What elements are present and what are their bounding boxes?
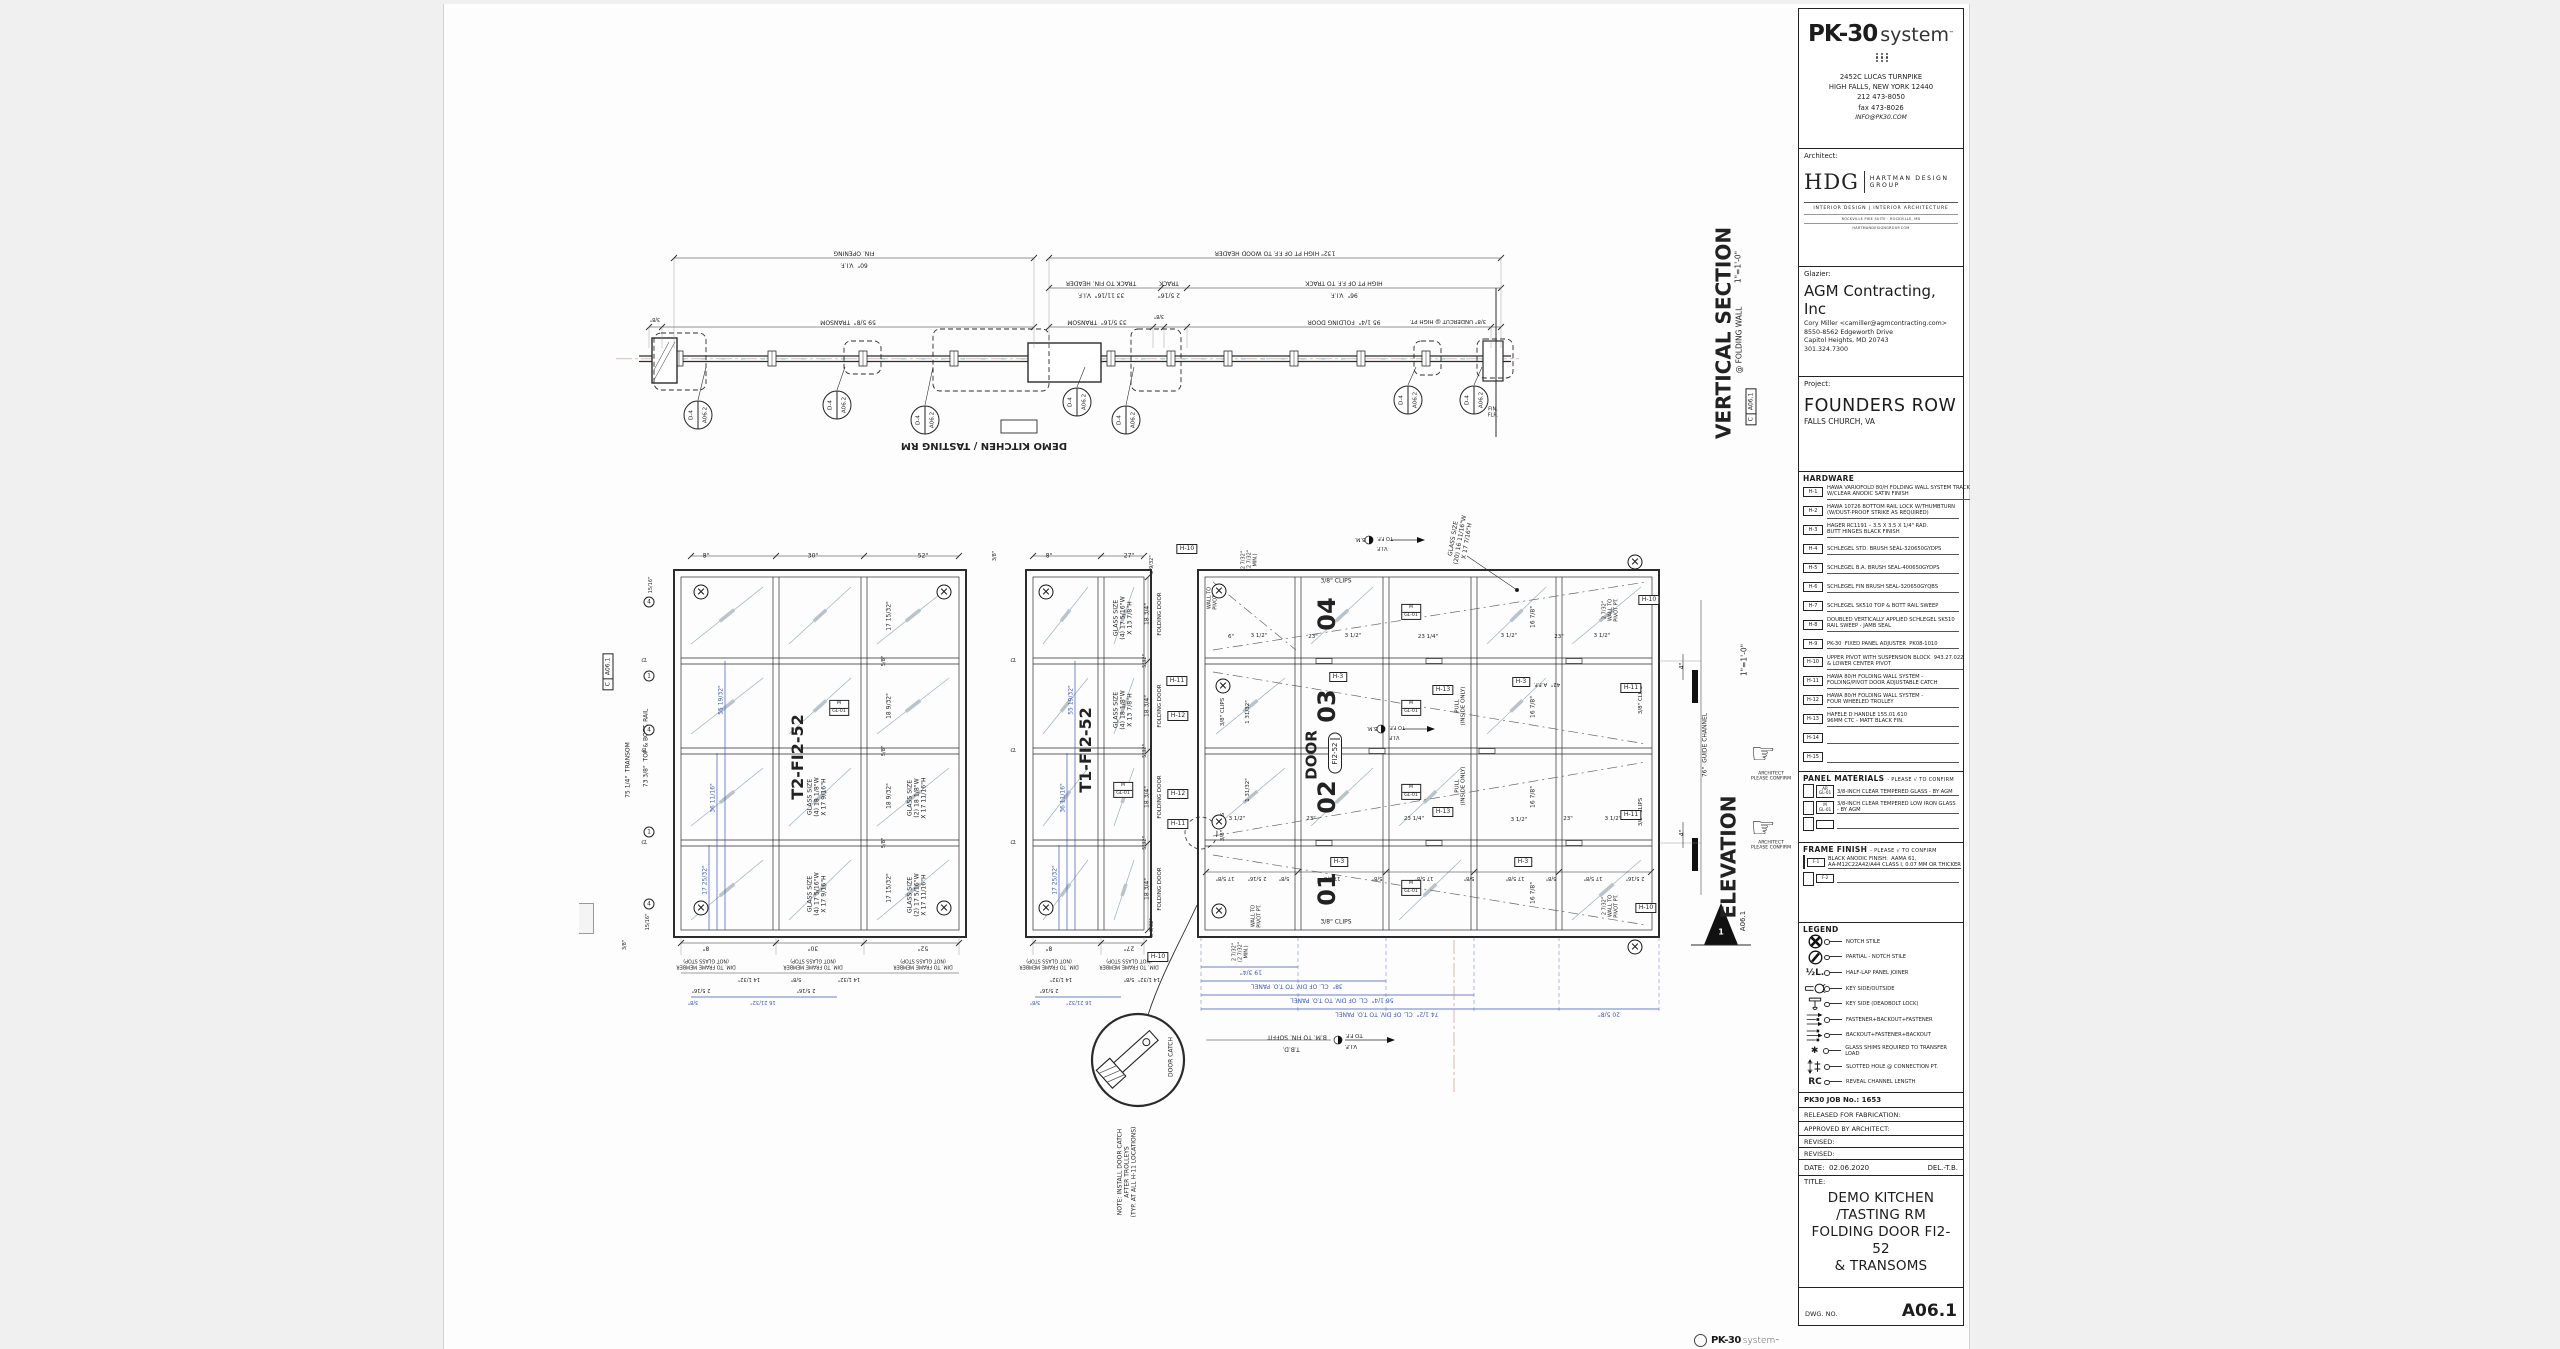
drawing-annotation: 18 3/4" [1145, 878, 1152, 900]
glazier-contact: Cory Miller <camiller@agmcontracting.com… [1804, 320, 1958, 354]
drawing-annotation: 8" [703, 944, 710, 951]
approval-row: REVISED: [1799, 1136, 1963, 1148]
drawing-annotation: TO F.F. [1377, 534, 1393, 540]
reference-tag: CA06.1 [603, 654, 614, 691]
drawing-annotation: 3 1/2" [1345, 633, 1362, 639]
confirm-checkbox[interactable] [1803, 801, 1814, 815]
drawing-annotation: 14 1/32" [738, 975, 760, 981]
drawing-annotation: ☞ [1750, 738, 1775, 770]
drawing-annotation: 5/8" [1124, 975, 1135, 981]
drawing-annotation: 2 7/32" (2 7/32" MIN.) [1241, 550, 1258, 570]
reference-tag: FI2-52 [1328, 733, 1342, 774]
drawing-annotation: 17 5/8" [1584, 874, 1603, 880]
hardware-tag: H-4 [1803, 544, 1823, 554]
delineator: DEL.-T.B. [1927, 1164, 1958, 1172]
legend-item: RCREVEAL CHANNEL LENGTH [1803, 1074, 1959, 1090]
drawing-annotation: 17 15/32" [887, 873, 894, 903]
glazier-block: Glazier: AGM Contracting, Inc Cory Mille… [1799, 267, 1963, 377]
drawing-annotation: 2 5/16" [1248, 874, 1267, 880]
hardware-desc: SCHLEGEL FIN BRUSH SEAL-320650GYQBS [1827, 581, 1959, 593]
notch-stile-mark: ✕ [694, 901, 709, 916]
sheet-title-line: DEMO KITCHEN [1804, 1190, 1958, 1207]
drawing-annotation: 3/8" UNDERCUT @ HIGH PT. [1410, 318, 1486, 324]
hardware-callout: H-10 [1638, 595, 1659, 605]
material-desc: 3/8-INCH CLEAR TEMPERED GLASS - BY AGM [1837, 787, 1959, 796]
hardware-callout: H-12 [1167, 789, 1188, 799]
hardware-callout: H-3 [1330, 857, 1348, 867]
company-address: 2452C LUCAS TURNPIKEHIGH FALLS, NEW YORK… [1804, 72, 1958, 122]
hardware-desc: PK-30 FIXED PANEL ADJUSTER PK08-1010 [1827, 638, 1959, 650]
drawing-annotation: HIGH PT OF F.F. TO TRACK [1305, 279, 1382, 286]
material-tag: AR GL-01 [1816, 785, 1834, 798]
drawing-annotation: 5/8" [1464, 874, 1475, 880]
legend-leader [1828, 1003, 1842, 1005]
legend-leader [1828, 1034, 1842, 1036]
job-number: PK30 JOB No.: 1653 [1799, 1093, 1963, 1108]
frame-finish-list: F-1BLACK ANODIC FINISH: AAMA 61, AA-M12C… [1803, 854, 1959, 887]
architect-logo: HDG HARTMAN DESIGN GROUP [1804, 170, 1958, 194]
hardware-row: H-1HAWA VARIOFOLD 80/H FOLDING WALL SYST… [1803, 483, 1959, 502]
drawing-annotation: 3 1/2" [1605, 816, 1622, 822]
drawing-annotation: @ FOLDING WALL [1736, 307, 1745, 374]
drawing-annotation: 3 1/2" [1229, 816, 1246, 822]
hardware-desc: SCHLEGEL B.A. BRUSH SEAL-400650GYDPS [1827, 562, 1959, 574]
drawing-annotation: 42" A.F.F. [1534, 681, 1561, 687]
centerline-mark: CL [1011, 658, 1016, 664]
reference-tag: CA06.1 [1746, 389, 1757, 426]
legend-label: PARTIAL - NOTCH STILE [1846, 954, 1906, 960]
panel-materials-title: PANEL MATERIALS - PLEASE √ TO CONFIRM [1803, 774, 1959, 783]
hardware-callout: H-11 [1620, 810, 1641, 820]
drawing-annotation: T1-FI2-52 [1077, 707, 1095, 793]
detail-callout-bubble: D-4A06.2 [823, 391, 852, 420]
drawing-annotation: 3 1/2" [1501, 633, 1518, 639]
notch-stile-mark: ✕ [1212, 815, 1227, 830]
drawing-annotation: B.M. [1355, 535, 1366, 541]
hardware-callout: H-13 [1432, 807, 1453, 817]
drawing-annotation: 16 21/32" [750, 998, 776, 1004]
drawing-annotation: ± 9/32" [1150, 918, 1156, 937]
drawing-annotation: 52" [918, 554, 928, 561]
drawing-annotation: 4" [1680, 663, 1687, 670]
drawing-annotation: 8" [1046, 944, 1053, 951]
detail-callout-bubble: D-4A06.2 [911, 406, 940, 435]
drawing-annotation: 1"=1'-0" [1741, 644, 1750, 676]
titleblock-logo: PK-30system™ 2452C LUCAS TURNPIKEHIGH FA… [1799, 9, 1963, 149]
hardware-tag: H-8 [1803, 620, 1823, 630]
drawing-annotation: 95 1/4" FOLDING DOOR [1308, 318, 1381, 325]
drawing-annotation: 36 11/16" [711, 783, 718, 813]
reference-tag: MGL-01 [1401, 604, 1421, 620]
detail-callout-bubble: D-4A06.2 [1460, 386, 1489, 415]
drawing-annotation: 33 11/16" V.I.F. [1078, 291, 1125, 298]
drawing-annotation: 8" [703, 554, 710, 561]
grid-marker: 1 [644, 827, 655, 838]
drawing-annotation: 16 7/8" [1531, 882, 1538, 904]
reference-tag: MGL-01 [1401, 700, 1421, 716]
drawing-annotation: 2 7/32" WALL TO PIVOT PT. [1602, 894, 1619, 917]
drawing-annotation: 02 [1314, 780, 1342, 813]
hardware-row: H-14 [1803, 729, 1959, 748]
drawing-annotation: 23" [1306, 816, 1316, 822]
hardware-row: H-15 [1803, 747, 1959, 766]
drawing-annotation: 5/8" [1546, 874, 1557, 880]
hardware-tag: H-13 [1803, 714, 1823, 724]
drawing-annotation: 74 1/2" CL. OF DIV. TO T.O. PANEL [1335, 1010, 1438, 1017]
drawing-annotation: 8" [1046, 554, 1053, 561]
legend-leader [1828, 1019, 1842, 1021]
hardware-tag: H-2 [1803, 506, 1823, 516]
drawing-annotation: V.I.F. [1376, 544, 1387, 550]
drawing-annotation: 5/8" [791, 975, 802, 981]
centerline-mark: CL [642, 840, 647, 846]
panel-materials-list: AR GL-013/8-INCH CLEAR TEMPERED GLASS - … [1803, 783, 1959, 833]
hardware-row: H-2HAWA 10726 BOTTOM RAIL LOCK W/THUMBTU… [1803, 502, 1959, 521]
legend-label: GLASS SHIMS REQUIRED TO TRANSFER LOAD [1845, 1045, 1959, 1057]
drawing-annotation: 30" [808, 944, 818, 951]
legend-label: HALF-LAP PANEL JOINER [1846, 970, 1908, 976]
drawing-annotation: 5/8" [882, 838, 888, 848]
architect-address: ROCKVILLE PIKE SUITE · ROCKVILLE, MD [1804, 217, 1958, 224]
drawing-annotation: 17 25/32" [1053, 865, 1060, 895]
hardware-callout: H-10 [1176, 544, 1197, 554]
drawing-annotation: 3/8" [993, 551, 999, 561]
drawing-annotation: DIM. TO FRAME MEMBER (NOT GLASS STOP) [893, 957, 952, 968]
hardware-callout: H-3 [1514, 857, 1532, 867]
drawing-annotation: 15/16" [649, 577, 655, 594]
detail-callout-bubble: D-4A06.2 [1112, 406, 1141, 435]
drawing-annotation: 2 5/16" [1158, 291, 1180, 298]
legend-item: KEY SIDE/OUTSIDE [1803, 981, 1959, 997]
hardware-tag: H-3 [1803, 525, 1823, 535]
address-line: HIGH FALLS, NEW YORK 12440 [1804, 82, 1958, 92]
drawing-annotation: 3/8" [688, 998, 699, 1004]
hardware-row: H-11HAWA 80/H FOLDING WALL SYSTEM - FOLD… [1803, 672, 1959, 691]
legend-label: FASTENER+BACKOUT+FASTENER [1846, 1017, 1933, 1023]
hardware-block: HARDWARE H-1HAWA VARIOFOLD 80/H FOLDING … [1799, 472, 1963, 772]
drawing-annotation: 03 [1314, 689, 1342, 722]
architect-firm: HARTMAN DESIGN GROUP [1870, 175, 1958, 189]
hardware-callout: H-11 [1167, 819, 1188, 829]
drawing-annotation: ARCHITECT PLEASE CONFIRM [1751, 841, 1791, 852]
panel-material-row: AR GL-013/8-INCH CLEAR TEMPERED GLASS - … [1803, 783, 1959, 800]
sheet-title: DEMO KITCHEN/TASTING RMFOLDING DOOR FI2-… [1804, 1190, 1958, 1274]
finish-desc [1837, 874, 1959, 883]
material-desc: 3/8-INCH CLEAR TEMPERED LOW IRON GLASS -… [1837, 801, 1959, 814]
reference-tag: MGL-01 [1113, 782, 1133, 798]
date-value: 02.06.2020 [1829, 1164, 1869, 1172]
footer-brand-light: system [1743, 1336, 1776, 1346]
drawing-annotation: TO F.F. [1389, 723, 1405, 729]
legend-label: REVEAL CHANNEL LENGTH [1846, 1079, 1915, 1085]
drawing-annotation: 18 3/4" [1145, 786, 1152, 808]
legend-item: FASTENER+BACKOUT+FASTENER [1803, 1012, 1959, 1028]
drawing-annotation: V.I.F. [1388, 733, 1399, 739]
drawing-annotation: 5/8" [882, 746, 888, 756]
drawing-annotation: DOOR [1303, 730, 1320, 780]
confirm-checkbox[interactable] [1803, 872, 1814, 886]
drawing-annotation: GLASS SIZE (2) 18 1/8"W X 17 11/16"H [906, 777, 927, 818]
drawing-annotation: FOLDING DOOR [1157, 775, 1163, 818]
drawing-annotation: 55 19/32" [1069, 685, 1076, 715]
drawing-annotation: 18 3/4" [1145, 695, 1152, 717]
sheet-edge-tab [579, 903, 594, 934]
title-block: PK-30system™ 2452C LUCAS TURNPIKEHIGH FA… [1798, 8, 1964, 1326]
reference-tag: MGL-01 [1401, 880, 1421, 896]
detail-callout-bubble: D-4A06.2 [684, 401, 713, 430]
drawing-annotation: 3/8" [1154, 312, 1164, 318]
grid-marker: 4 [644, 899, 655, 910]
drawing-annotation: TRACK [1159, 279, 1179, 286]
drawing-annotation: 3/8" [650, 315, 660, 321]
hardware-callout: H-3 [1329, 672, 1347, 682]
finish-tag: F-1 [1807, 858, 1825, 867]
legend-label: KEY SIDE/OUTSIDE [1846, 986, 1894, 992]
drawing-annotation: 20 5/8" [1598, 1010, 1620, 1017]
drawing-annotation: 60" V.I.F. [840, 261, 868, 268]
drawing-annotation: 2 7/32" (2 7/32" MIN.) [1232, 942, 1249, 962]
drawing-annotation: 2 5/16" [692, 986, 711, 992]
drawing-annotation: 23" [1554, 634, 1564, 640]
architect-website: HARTMANDESIGNGROUP.COM [1804, 226, 1958, 232]
drawing-annotation: 23 1/4" [1404, 816, 1424, 822]
drawing-annotation: 2 7/32" WALL TO PIVOT PT. [1602, 598, 1619, 621]
drawing-annotation: WALL TO PIVOT PT. [1251, 904, 1263, 927]
legend-item: NOTCH STILE [1803, 934, 1959, 950]
approval-row: REVISED: [1799, 1148, 1963, 1160]
title-label: TITLE: [1804, 1178, 1958, 1186]
architect-block: Architect: HDG HARTMAN DESIGN GROUP INTE… [1799, 149, 1963, 267]
reference-tag: MGL-01 [829, 700, 849, 716]
confirm-checkbox[interactable] [1803, 784, 1814, 798]
legend-label: SLOTTED HOLE @ CONNECTION PT. [1846, 1064, 1938, 1070]
legend-item: SLOTTED HOLE @ CONNECTION PT. [1803, 1059, 1959, 1075]
drawing-annotation: FIN. FLR. [1488, 407, 1499, 419]
drawing-annotation: FOLDING DOOR [1157, 592, 1163, 635]
hardware-callout: H-10 [1635, 903, 1656, 913]
legend-leader [1828, 1066, 1842, 1068]
drawing-annotation: 3 1/2" [1511, 817, 1528, 823]
notch-stile-mark: ✕ [1216, 679, 1231, 694]
confirm-checkbox[interactable] [1803, 855, 1805, 869]
drawing-annotation: 17 25/32" [703, 865, 710, 895]
drawing-annotation: 1"=1'-0" [1735, 251, 1744, 283]
legend-leader [1828, 941, 1842, 943]
hardware-desc: HAFELE D HANDLE 155.01.610 96MM CTC - MA… [1827, 712, 1959, 727]
drawing-annotation: 6" [1228, 634, 1234, 640]
hardware-tag: H-14 [1803, 733, 1823, 743]
hardware-row: H-9PK-30 FIXED PANEL ADJUSTER PK08-1010 [1803, 634, 1959, 653]
grid-marker: 4 [644, 725, 655, 736]
hardware-title: HARDWARE [1803, 474, 1959, 483]
hardware-desc: SCHLEGEL STD. BRUSH SEAL-320650GYDPS [1827, 543, 1959, 555]
drawing-annotation: T.B.D. [1282, 1045, 1299, 1052]
drawing-annotation: 16 7/8" [1531, 606, 1538, 628]
drawing-annotation: VERTICAL SECTION [1713, 227, 1736, 439]
drawing-annotation: 2 5/16" [797, 986, 816, 992]
company-email: INFO@PK30.COM [1804, 113, 1958, 122]
drawing-annotation: 18 9/32" [887, 693, 894, 719]
hardware-desc: HAGER RC1191 – 3.5 X 3.5 X 1/4" RAD. BUT… [1827, 523, 1959, 538]
legend-label: KEY SIDE (DEADBOLT LOCK) [1846, 1001, 1918, 1007]
drawing-annotation: B.M. [1367, 724, 1378, 730]
frame-finish-title: FRAME FINISH - PLEASE √ TO CONFIRM [1803, 845, 1959, 854]
drawing-annotation: 27" [1124, 554, 1134, 561]
drawing-annotation: 55 19/32" [719, 685, 726, 715]
drawing-annotation: 5/32" [1143, 654, 1149, 668]
hardware-desc: DOUBLED VERTICALLY APPLIED SCHLEGEL SK51… [1827, 617, 1959, 632]
drawing-annotation: DIM. TO FRAME MEMBER (NOT GLASS STOP) [1019, 957, 1078, 968]
hardware-callout: H-10 [1147, 952, 1168, 962]
hardware-callout: H-13 [1432, 685, 1453, 695]
hardware-desc: HAWA 10726 BOTTOM RAIL LOCK W/THUMBTURN … [1827, 504, 1959, 519]
drawing-annotation: DIM. TO FRAME MEMBER (NOT GLASS STOP) [676, 957, 735, 968]
drawing-annotation: 59 5/8" TRANSOM [820, 318, 876, 325]
drawing-sheet: FIN. OPENING60" V.I.F.132" HIGH PT OF F.… [443, 4, 1970, 1349]
grid-marker: 1 [644, 671, 655, 682]
glazier-contact-line: 8550-8562 Edgeworth Drive [1804, 329, 1958, 338]
address-line: 2452C LUCAS TURNPIKE [1804, 72, 1958, 82]
grid-marker: 4 [644, 597, 655, 608]
drawing-annotation: 5/8" [882, 656, 888, 666]
drawing-annotation: GLASS SIZE (4) 18 1/8"W X 13 7/8"H [1112, 690, 1133, 730]
legend-leader [1828, 988, 1842, 990]
notch-stile-mark: ✕ [1212, 904, 1227, 919]
project-name: FOUNDERS ROW [1804, 396, 1958, 416]
drawing-annotation: 3/8" CLIPS [1320, 579, 1351, 586]
hardware-tag: H-6 [1803, 582, 1823, 592]
hardware-tag: H-10 [1803, 657, 1823, 667]
hardware-tag: H-15 [1803, 752, 1823, 762]
hardware-tag: H-12 [1803, 695, 1823, 705]
drawing-annotation: GLASS SIZE (2) 17 5/16"W X 17 11/16"H [906, 873, 927, 916]
sheet-title-line: FOLDING DOOR FI2-52 [1804, 1224, 1958, 1258]
legend-title: LEGEND [1803, 925, 1959, 934]
drawing-annotation: 4" [1680, 830, 1687, 837]
dwg-number-block: DWG. NO. A06.1 [1799, 1288, 1963, 1324]
drawing-annotation: 23" [1563, 816, 1573, 822]
drawing-annotation: 17 5/8" [1506, 874, 1525, 880]
glazier-label: Glazier: [1804, 270, 1958, 278]
drawing-annotation: 17 5/8" [1216, 874, 1235, 880]
hardware-tag: H-9 [1803, 639, 1823, 649]
brand-tm: ™ [1949, 31, 1954, 37]
drawing-annotation: GLASS SIZE (4) 18 1/8"W X 17 9/16"H [806, 777, 827, 817]
hardware-desc [1827, 751, 1959, 763]
legend-leader [1828, 956, 1842, 958]
hardware-desc: HAWA 80/H FOLDING WALL SYSTEM - FOLDING/… [1827, 674, 1959, 689]
divider [1864, 171, 1865, 193]
legend-item: ✱GLASS SHIMS REQUIRED TO TRANSFER LOAD [1803, 1043, 1959, 1059]
confirm-checkbox[interactable] [1803, 817, 1814, 831]
hardware-tag: H-7 [1803, 601, 1823, 611]
drawing-annotation: ARCHITECT PLEASE CONFIRM [1751, 772, 1791, 783]
detail-callout-bubble: D-4A06.2 [1394, 386, 1423, 415]
panel-material-row: M GL-013/8-INCH CLEAR TEMPERED LOW IRON … [1803, 800, 1959, 817]
drawing-annotation: 56 1/4" CL. OF DIV. TO T.O. PANEL [1290, 996, 1393, 1003]
legend-leader [1828, 972, 1842, 974]
drawing-annotation: 23" [1308, 634, 1318, 640]
drawing-annotation: FOLDING DOOR [1157, 684, 1163, 727]
logo-ring-icon [1694, 1334, 1707, 1347]
footer-brand-tm: ™ [1775, 1338, 1779, 1343]
architect-label: Architect: [1804, 152, 1958, 160]
drawing-annotation: 3/8" [623, 940, 629, 950]
panel-materials-block: PANEL MATERIALS - PLEASE √ TO CONFIRM AR… [1799, 772, 1963, 843]
drawing-annotation: DIM. TO FRAME MEMBER (NOT GLASS STOP) [783, 957, 842, 968]
drawing-annotation: 5/8" [1279, 874, 1290, 880]
hardware-callout: H-11 [1620, 683, 1641, 693]
hardware-callout: H-12 [1167, 711, 1188, 721]
panel-material-row [1803, 816, 1959, 833]
drawing-annotation: DEMO KITCHEN / TASTING RM [901, 439, 1067, 451]
drawing-annotation: TO F.F. [1345, 1032, 1363, 1038]
glazier-contact-line: Capitol Heights, MD 20743 [1804, 337, 1958, 346]
hardware-desc: HAWA VARIOFOLD 80/H FOLDING WALL SYSTEM … [1827, 485, 1970, 500]
drawing-annotation: 16 21/32" [1066, 998, 1092, 1004]
legend-item: PARTIAL - NOTCH STILE [1803, 950, 1959, 966]
hardware-row: H-8DOUBLED VERTICALLY APPLIED SCHLEGEL S… [1803, 615, 1959, 634]
material-tag: M GL-01 [1816, 801, 1834, 814]
hardware-desc: UPPER PIVOT WITH SUSPENSION BLOCK 943.27… [1827, 655, 1963, 670]
drawing-annotation: NOTE: INSTALL DOOR CATCH AFTER TROLLEYS … [1118, 1127, 1139, 1218]
legend-label: BACKOUT+FASTENER+BACKOUT [1846, 1032, 1931, 1038]
hardware-tag: H-1 [1803, 487, 1823, 497]
drawing-annotation: 33 5/16" TRANSOM [1067, 318, 1126, 325]
drawing-annotation: 1 [1718, 927, 1724, 936]
drawing-annotation: 04 [1314, 597, 1342, 630]
project-block: Project: FOUNDERS ROW FALLS CHURCH, VA [1799, 377, 1963, 472]
hardware-tag: H-5 [1803, 563, 1823, 573]
frame-finish-row: F-1BLACK ANODIC FINISH: AAMA 61, AA-M12C… [1803, 854, 1959, 871]
approval-rows: RELEASED FOR FABRICATION:APPROVED BY ARC… [1799, 1108, 1963, 1160]
drawing-annotation: PULL (INSIDE ONLY) [1455, 767, 1468, 806]
hardware-callout: H-3 [1512, 677, 1530, 687]
drawing-annotation: 18 3/4" [1145, 603, 1152, 625]
drawing-annotation: 19 3/4" [1240, 968, 1262, 975]
sheet-title-line: & TRANSOMS [1804, 1258, 1958, 1275]
date-row: DATE: 02.06.2020 DEL.-T.B. [1799, 1160, 1963, 1176]
drawing-annotation: ± 9/32" [1150, 555, 1156, 574]
hardware-row: H-7SCHLEGEL SK510 TOP & BOTT RAIL SWEEP [1803, 596, 1959, 615]
hardware-row: H-4SCHLEGEL STD. BRUSH SEAL-320650GYDPS [1803, 540, 1959, 559]
drawing-annotation: 3 1/2" [1594, 633, 1611, 639]
detail-callout-bubble: D-4A06.2 [1063, 388, 1092, 417]
hardware-tag: H-11 [1803, 676, 1823, 686]
hardware-row: H-3HAGER RC1191 – 3.5 X 3.5 X 1/4" RAD. … [1803, 521, 1959, 540]
drawing-annotation: 27" [1124, 944, 1134, 951]
drawing-annotation: 1 31/32" [1245, 778, 1251, 802]
project-label: Project: [1804, 380, 1958, 388]
dwg-number: A06.1 [1902, 1301, 1957, 1321]
drawing-annotation: 3/8" [1030, 998, 1041, 1004]
notch-stile-mark: ✕ [1628, 940, 1643, 955]
drawing-annotation: 1 31/32" [1245, 700, 1251, 724]
drawing-annotation: 76" GUIDE CHANNEL [1703, 713, 1710, 777]
drawing-annotation: ☞ [1750, 812, 1775, 844]
dwg-label: DWG. NO. [1805, 1310, 1837, 1318]
brand-bold: PK-30 [1808, 21, 1877, 47]
finish-desc: BLACK ANODIC FINISH: AAMA 61, AA-M12C22A… [1828, 856, 1961, 869]
legend-block: LEGEND NOTCH STILEPARTIAL - NOTCH STILE½… [1799, 923, 1963, 1093]
drawing-annotation: B.M. TO FIN. SOFFIT [1267, 1033, 1327, 1040]
hardware-callout: H-11 [1166, 676, 1187, 686]
hardware-desc: HAWA 80/H FOLDING WALL SYSTEM - FOUR WHE… [1827, 693, 1959, 708]
drawing-annotation: 132" HIGH PT OF F.F. TO WOOD HEADER [1215, 249, 1336, 256]
notch-stile-mark: ✕ [1039, 901, 1054, 916]
drawing-annotation: 14 1/32" [838, 975, 860, 981]
drawing-annotation: 18 9/32" [887, 783, 894, 809]
